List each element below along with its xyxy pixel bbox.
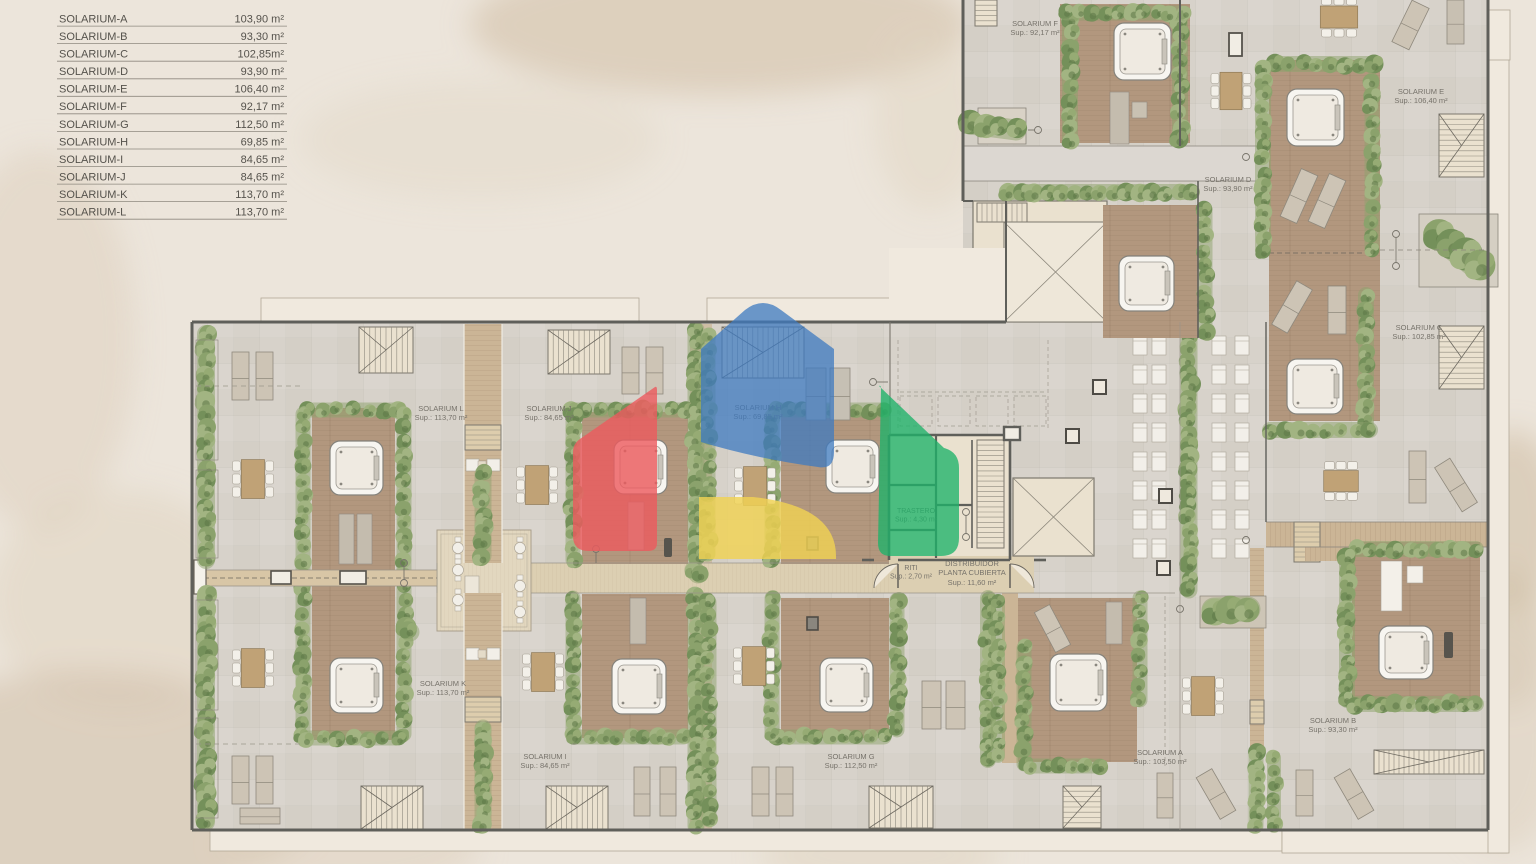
svg-text:Sup.: 102,85 m²: Sup.: 102,85 m²	[1392, 332, 1446, 341]
svg-text:106,40 m²: 106,40 m²	[234, 84, 284, 96]
svg-text:DISTRIBUIDOR: DISTRIBUIDOR	[945, 559, 999, 568]
svg-text:Sup.: 92,17 m²: Sup.: 92,17 m²	[1010, 28, 1060, 37]
svg-text:SOLARIUM I: SOLARIUM I	[523, 752, 566, 761]
svg-text:SOLARIUM-E: SOLARIUM-E	[59, 84, 127, 96]
svg-text:Sup.: 84,65 m²: Sup.: 84,65 m²	[520, 761, 570, 770]
svg-text:112,50 m²: 112,50 m²	[235, 119, 284, 131]
svg-text:SOLARIUM C: SOLARIUM C	[1396, 323, 1443, 332]
svg-text:PLANTA CUBIERTA: PLANTA CUBIERTA	[938, 568, 1006, 577]
svg-text:SOLARIUM-I: SOLARIUM-I	[59, 154, 123, 166]
svg-text:113,70 m²: 113,70 m²	[235, 207, 284, 219]
svg-text:92,17 m²: 92,17 m²	[241, 101, 285, 113]
svg-text:SOLARIUM A: SOLARIUM A	[1137, 748, 1183, 757]
svg-text:SOLARIUM K: SOLARIUM K	[420, 679, 466, 688]
svg-text:SOLARIUM-L: SOLARIUM-L	[59, 207, 126, 219]
svg-text:SOLARIUM-D: SOLARIUM-D	[59, 66, 128, 78]
svg-text:SOLARIUM-G: SOLARIUM-G	[59, 119, 129, 131]
svg-text:SOLARIUM-B: SOLARIUM-B	[59, 31, 127, 43]
svg-text:Sup.: 113,70 m²: Sup.: 113,70 m²	[415, 413, 468, 422]
svg-text:Sup.: 93,90 m²: Sup.: 93,90 m²	[1203, 184, 1253, 193]
svg-text:Sup.: 84,65 m²: Sup.: 84,65 m²	[524, 413, 574, 422]
svg-text:93,30 m²: 93,30 m²	[241, 31, 285, 43]
svg-text:SOLARIUM-H: SOLARIUM-H	[59, 136, 128, 148]
svg-text:SOLARIUM-J: SOLARIUM-J	[59, 172, 126, 184]
svg-text:SOLARIUM-K: SOLARIUM-K	[59, 189, 128, 201]
svg-text:SOLARIUM J: SOLARIUM J	[526, 404, 571, 413]
svg-text:Sup.: 113,70 m²: Sup.: 113,70 m²	[417, 688, 470, 697]
svg-text:93,90 m²: 93,90 m²	[241, 66, 285, 78]
svg-text:Sup.: 106,40 m²: Sup.: 106,40 m²	[1394, 96, 1448, 105]
svg-text:SOLARIUM-F: SOLARIUM-F	[59, 101, 127, 113]
svg-text:69,85 m²: 69,85 m²	[241, 136, 285, 148]
svg-text:SOLARIUM E: SOLARIUM E	[1398, 87, 1444, 96]
svg-text:Sup.: 2,70 m²: Sup.: 2,70 m²	[890, 574, 933, 581]
svg-text:Sup.: 93,30 m²: Sup.: 93,30 m²	[1308, 725, 1358, 734]
svg-text:84,65 m²: 84,65 m²	[241, 154, 285, 166]
svg-text:84,65 m²: 84,65 m²	[241, 172, 285, 184]
svg-text:113,70 m²: 113,70 m²	[235, 189, 284, 201]
svg-text:103,90 m²: 103,90 m²	[234, 14, 284, 26]
svg-text:Sup.: 11,60 m²: Sup.: 11,60 m²	[948, 578, 997, 587]
svg-text:SOLARIUM B: SOLARIUM B	[1310, 716, 1356, 725]
svg-text:Sup.: 112,50 m²: Sup.: 112,50 m²	[825, 761, 878, 770]
svg-text:SOLARIUM-A: SOLARIUM-A	[59, 14, 128, 26]
svg-text:SOLARIUM F: SOLARIUM F	[1012, 19, 1058, 28]
svg-text:RITI: RITI	[904, 565, 917, 572]
svg-text:SOLARIUM D: SOLARIUM D	[1205, 175, 1252, 184]
svg-text:SOLARIUM-C: SOLARIUM-C	[59, 49, 128, 61]
svg-text:Sup.: 103,50 m²: Sup.: 103,50 m²	[1133, 757, 1187, 766]
svg-text:102,85m²: 102,85m²	[238, 49, 285, 61]
svg-text:SOLARIUM G: SOLARIUM G	[827, 752, 874, 761]
svg-text:SOLARIUM L: SOLARIUM L	[418, 404, 463, 413]
